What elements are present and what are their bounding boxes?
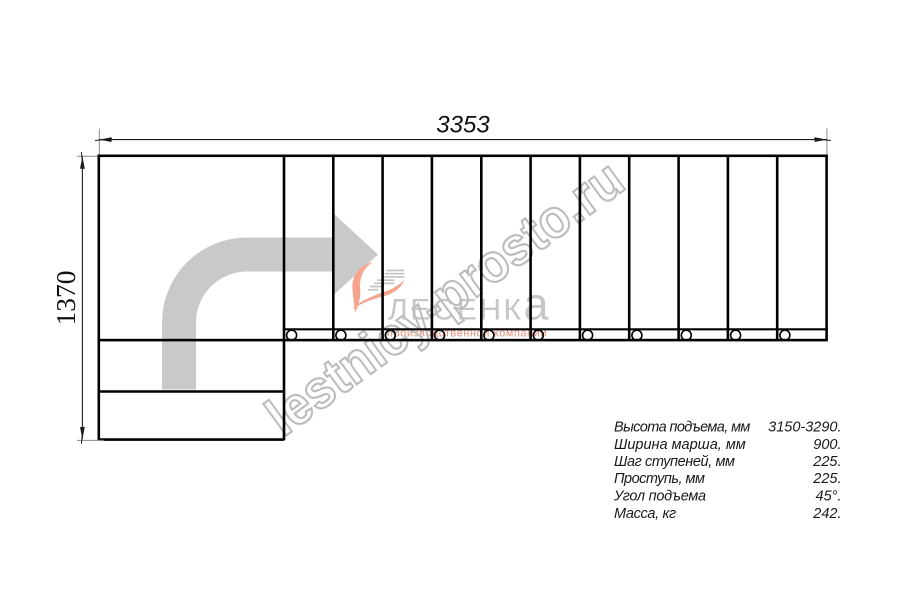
svg-text:900.: 900. (813, 437, 841, 453)
svg-text:1370: 1370 (50, 271, 81, 326)
svg-text:Ширина марша, мм: Ширина марша, мм (614, 437, 746, 453)
svg-text:Масса, кг: Масса, кг (614, 506, 676, 522)
svg-text:Высота подъема, мм: Высота подъема, мм (614, 420, 750, 436)
svg-text:Угол подъема: Угол подъема (613, 489, 706, 505)
svg-text:45°.: 45°. (816, 489, 842, 505)
svg-text:242.: 242. (812, 506, 841, 522)
svg-text:225.: 225. (812, 454, 841, 470)
svg-text:Проступь, мм: Проступь, мм (614, 471, 705, 487)
svg-text:3150-3290.: 3150-3290. (768, 420, 841, 436)
svg-text:lestnicy-prosto.ru: lestnicy-prosto.ru (255, 149, 635, 448)
svg-text:3353: 3353 (436, 112, 490, 139)
svg-text:Шаг ступеней, мм: Шаг ступеней, мм (614, 454, 735, 470)
svg-text:225.: 225. (812, 471, 841, 487)
